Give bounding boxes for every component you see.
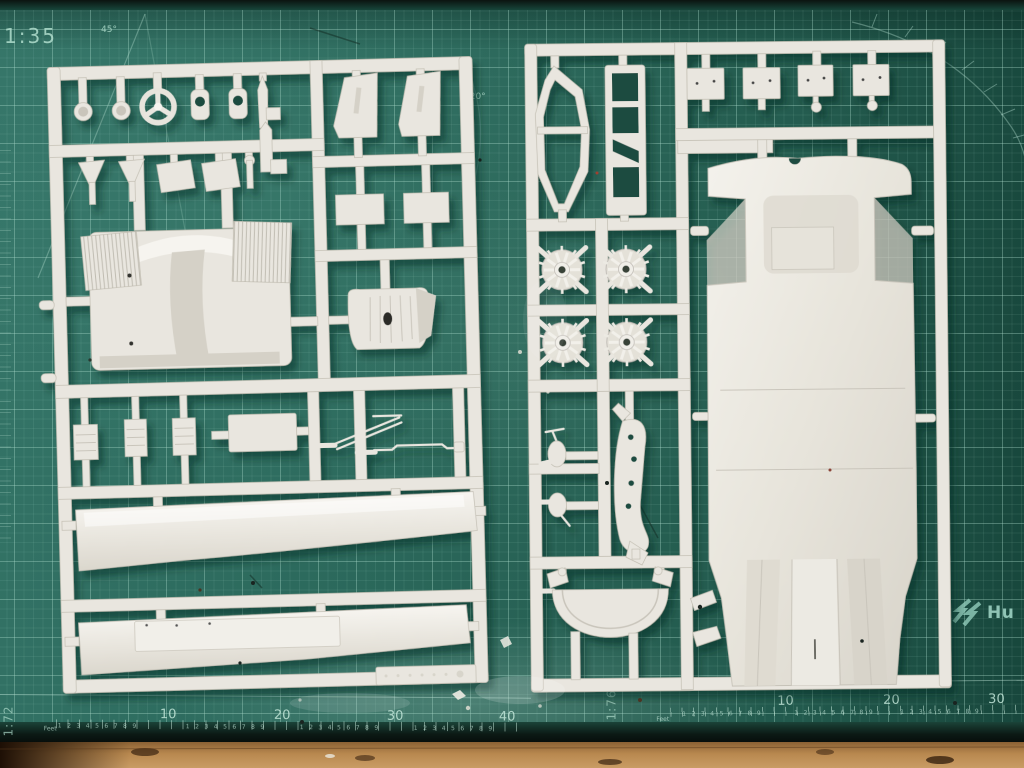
sprue-embossed-marking	[376, 665, 476, 686]
part-steering-wheel	[141, 72, 174, 123]
part-pedal-1	[156, 154, 195, 193]
part-instrument-dial-1	[73, 77, 92, 120]
part-shift-boot-2	[228, 73, 247, 118]
runner	[310, 60, 331, 390]
part-square-plate-2	[743, 54, 781, 110]
part-body-side-panel-1	[61, 486, 487, 571]
photo-plastic-model-sprues-on-cutting-mat: 1:35 45° 120° 1:72 1:76 Feet 10 20 30 40…	[0, 0, 1024, 768]
part-square-plate-1	[687, 54, 725, 111]
right-sprue	[525, 40, 952, 692]
part-radiator-block-1	[73, 397, 99, 487]
part-wheel-hub-4	[603, 318, 652, 367]
runner	[315, 246, 477, 261]
runner	[312, 152, 474, 167]
part-small-fin-1	[690, 590, 716, 610]
part-chassis-lattice	[605, 55, 647, 221]
part-gear-lever	[244, 152, 255, 188]
part-cockpit-tub	[64, 219, 319, 371]
part-suspension-bracket	[612, 391, 649, 565]
runner	[525, 40, 945, 56]
part-mirror-knob-1	[541, 428, 598, 467]
part-small-fin-2	[693, 626, 721, 646]
runner	[459, 56, 488, 682]
left-sprue	[33, 56, 490, 693]
part-square-plate-3	[798, 51, 834, 112]
part-radiator-block-3	[172, 395, 197, 485]
runner	[530, 555, 692, 569]
part-nose-cone-1	[257, 73, 280, 129]
part-flat-plate-1	[335, 166, 385, 250]
runner-nub	[39, 300, 54, 309]
part-wing-endplate-1	[332, 70, 379, 158]
part-steering-linkage	[357, 442, 464, 455]
part-mirror-fork-1	[78, 156, 105, 205]
part-bulkhead-semicircle	[542, 567, 674, 680]
runner	[49, 138, 324, 157]
runner	[453, 388, 466, 477]
runner	[308, 392, 321, 481]
part-mirror-knob-2	[541, 492, 598, 526]
runner	[597, 391, 611, 556]
runner-nub	[41, 373, 56, 382]
part-square-plate-4	[853, 50, 890, 110]
runner	[55, 374, 480, 398]
part-floor-plate	[211, 413, 309, 453]
part-roll-hoop	[535, 56, 591, 223]
part-flat-plate-2	[403, 164, 450, 248]
part-wheel-hub-2	[602, 245, 651, 294]
runner	[676, 126, 934, 141]
part-pedal-2	[201, 153, 240, 192]
part-instrument-dial-2	[111, 76, 130, 119]
part-wing-endplate-2	[397, 68, 442, 156]
scene-overlay	[0, 0, 1024, 768]
part-shift-boot-1	[190, 74, 209, 119]
runner	[933, 40, 952, 687]
part-floor-pan	[690, 138, 939, 687]
part-radiator-block-2	[124, 396, 148, 486]
part-bucket-seat	[327, 259, 437, 351]
